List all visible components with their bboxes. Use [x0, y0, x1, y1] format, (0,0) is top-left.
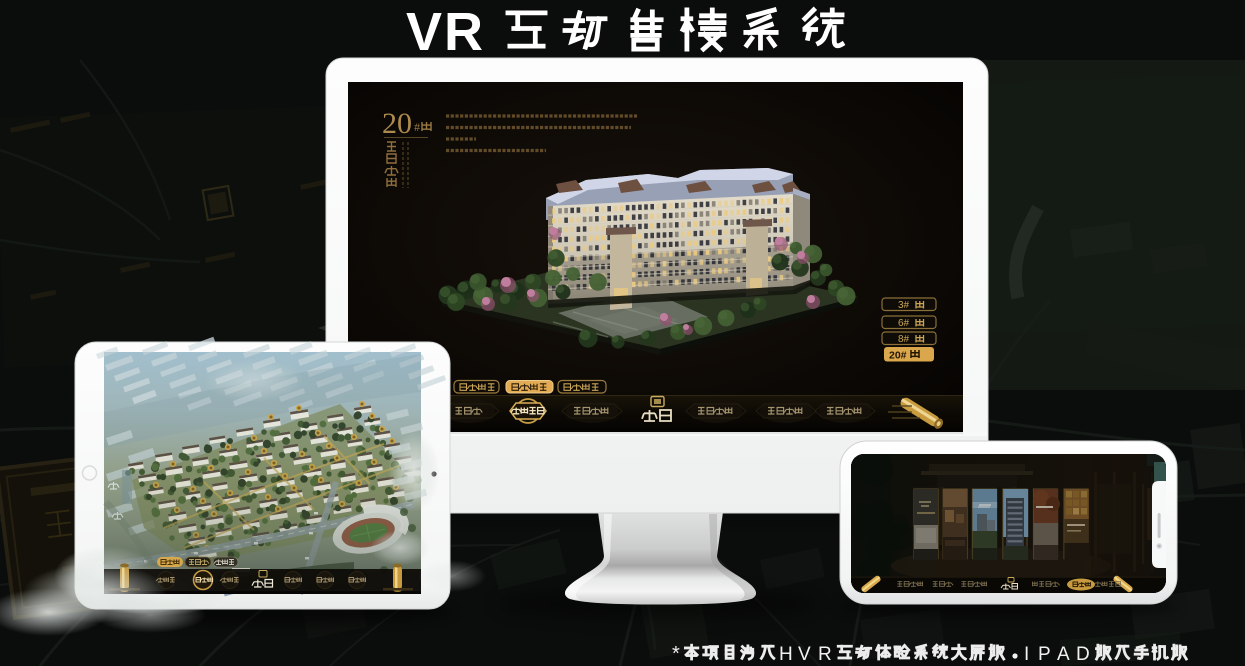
svg-text:I: I — [1024, 644, 1029, 665]
svg-text:H: H — [779, 644, 793, 665]
svg-text:V: V — [798, 644, 811, 665]
svg-text:P: P — [1038, 644, 1051, 665]
svg-text:A: A — [1057, 644, 1070, 665]
svg-text:D: D — [1076, 644, 1090, 665]
svg-text:*: * — [672, 643, 680, 665]
svg-text:R: R — [818, 644, 832, 665]
